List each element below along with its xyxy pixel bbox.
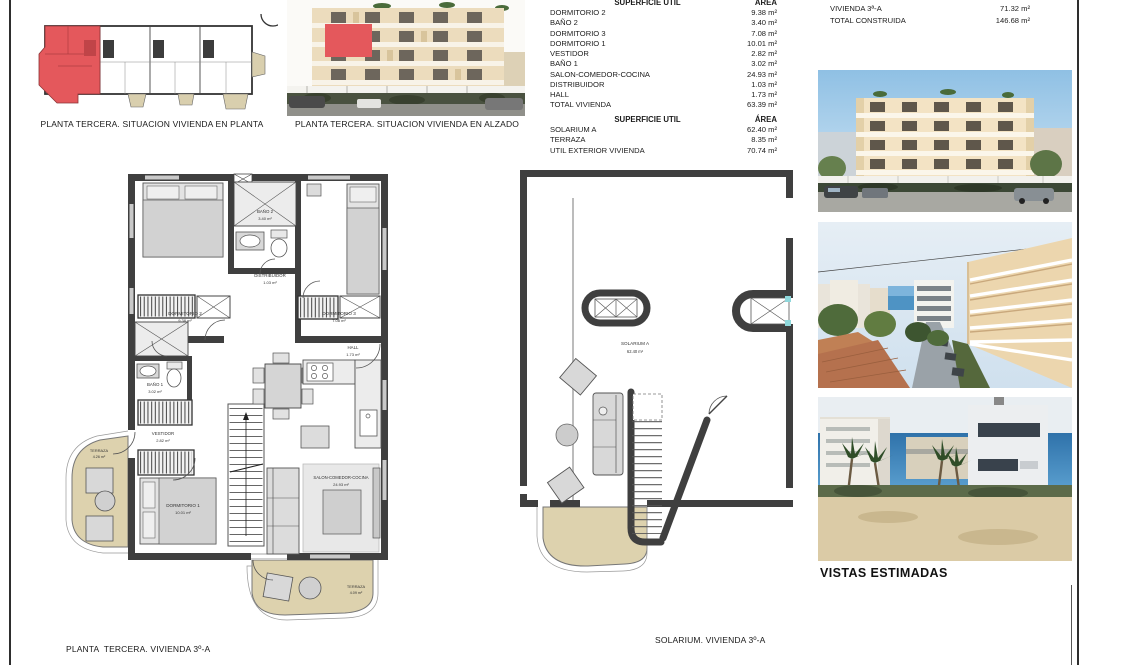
area-value: 8.35 m² xyxy=(751,135,777,144)
highlighted-unit-elevation xyxy=(325,24,372,57)
table-row: DORMITORIO 37.08 m² xyxy=(550,28,777,38)
bathroom1-fixtures xyxy=(135,322,188,387)
area-value: 7.08 m² xyxy=(751,29,777,38)
room-area: 62.40 m² xyxy=(627,349,644,354)
sheet-border-right xyxy=(1077,0,1079,665)
area-value: 10.01 m² xyxy=(747,39,777,48)
room-area: 3.40 m² xyxy=(258,216,272,221)
table-row: VIVIENDA 3ª-A71.32 m² xyxy=(830,2,1030,14)
area-value: 146.68 m² xyxy=(996,16,1030,25)
room-label: HALL xyxy=(348,345,360,350)
room-label: BAÑO 1 xyxy=(147,382,164,387)
room-area: 2.82 m² xyxy=(156,438,170,443)
room-label: TOTAL VIVIENDA xyxy=(550,100,747,109)
caption-planta-vivienda: PLANTA TERCERA. VIVIENDA 3º-A xyxy=(66,644,210,654)
room-area: 1.73 m² xyxy=(346,352,360,357)
header-superficie: SUPERFICIE UTIL xyxy=(550,115,731,124)
room-area: 3.02 m² xyxy=(148,389,162,394)
area-value: 24.93 m² xyxy=(747,70,777,79)
room-label: DORMITORIO 1 xyxy=(550,39,747,48)
photo-sea-view xyxy=(818,397,1072,561)
area-value: 2.82 m² xyxy=(751,49,777,58)
vistas-estimadas-label: VISTAS ESTIMADAS xyxy=(820,566,948,580)
room-label: DORMITORIO 3 xyxy=(322,311,356,316)
room-label: CONSTRUIDA TERRAZA xyxy=(830,0,1004,1)
caption-situacion-alzado: PLANTA TERCERA. SITUACION VIVIENDA EN AL… xyxy=(285,119,529,129)
area-value: 70.74 m² xyxy=(747,146,777,155)
room-label: SOLARIUM A xyxy=(621,341,650,346)
room-label: VIVIENDA 3ª-A xyxy=(830,4,1000,13)
table-row: HALL1.73 m² xyxy=(550,89,777,99)
area-value: 63.39 m² xyxy=(747,100,777,109)
room-label: UTIL EXTERIOR VIVIENDA xyxy=(550,146,747,155)
room-label: TERRAZA xyxy=(347,584,366,589)
room-label: TERRAZA xyxy=(550,135,751,144)
street-level xyxy=(287,86,525,116)
room-label: DORMITORIO 2 xyxy=(550,8,751,17)
terrace-south xyxy=(247,560,378,620)
room-label: HALL xyxy=(550,90,751,99)
area-value: 62.40 m² xyxy=(747,125,777,134)
photo-street-view xyxy=(818,222,1072,388)
floor-plan-vivienda: DORMITORIO 2 9.38 m² BAÑO 2 3.40 m² DORM… xyxy=(55,168,405,628)
table-superficie-util-exterior: SUPERFICIE UTIL ÁREA SOLARIUM A62.40 m² … xyxy=(550,115,777,155)
table-row: DORMITORIO 29.38 m² xyxy=(550,8,777,18)
solarium-stairs xyxy=(631,392,727,542)
table-superficie-construida: CONSTRUIDA TERRAZA8.32 m² VIVIENDA 3ª-A7… xyxy=(830,0,1030,26)
table-row: SALON-COMEDOR-COCINA24.93 m² xyxy=(550,69,777,79)
table-row-total: TOTAL VIVIENDA63.39 m² xyxy=(550,100,777,110)
sheet-border-left xyxy=(9,0,11,665)
area-value: 8.32 m² xyxy=(1004,0,1030,1)
room-label: VESTIDOR xyxy=(550,49,751,58)
area-value: 9.38 m² xyxy=(751,8,777,17)
table-row: TERRAZA8.35 m² xyxy=(550,135,777,145)
header-area: ÁREA xyxy=(731,115,777,124)
room-label: DISTRIBUIDOR xyxy=(550,80,751,89)
caption-solarium: SOLARIUM. VIVIENDA 3º-A xyxy=(655,635,765,645)
room-area: 10.01 m² xyxy=(175,510,191,515)
room-label: BAÑO 2 xyxy=(550,18,751,27)
plan-sheet: PLANTA TERCERA. SITUACION VIVIENDA EN PL… xyxy=(0,0,1130,665)
room-label: DORMITORIO 1 xyxy=(166,503,200,508)
caption-situacion-planta: PLANTA TERCERA. SITUACION VIVIENDA EN PL… xyxy=(30,119,274,129)
table-row: BAÑO 13.02 m² xyxy=(550,59,777,69)
table-superficie-util-vivienda: SUPERFICIE UTIL ÁREA DORMITORIO 29.38 m²… xyxy=(550,0,777,110)
area-value: 3.40 m² xyxy=(751,18,777,27)
room-label: SALON-COMEDOR-COCINA xyxy=(550,70,747,79)
highlighted-unit xyxy=(39,26,100,103)
room-label: BAÑO 2 xyxy=(257,209,274,214)
header-superficie: SUPERFICIE UTIL xyxy=(550,0,731,7)
planter-left xyxy=(585,293,647,323)
room-label: TOTAL CONSTRUIDA xyxy=(830,16,996,25)
room-label: TERRAZA xyxy=(90,448,109,453)
area-value: 1.03 m² xyxy=(751,80,777,89)
room-label: VESTIDOR xyxy=(152,431,174,436)
key-elevation-alzado xyxy=(287,0,525,116)
solarium-plan: SOLARIUM A 62.40 m² xyxy=(513,168,803,646)
room-label: DORMITORIO 3 xyxy=(550,29,751,38)
table-row: DORMITORIO 110.01 m² xyxy=(550,38,777,48)
room-area: 4.26 m² xyxy=(93,455,106,459)
key-plan-situacion xyxy=(28,14,278,116)
photo-render-building xyxy=(818,70,1072,212)
table-row: DISTRIBUIDOR1.03 m² xyxy=(550,79,777,89)
room-label: SALON-COMEDOR-COCINA xyxy=(313,475,368,480)
table-row-total: TOTAL CONSTRUIDA146.68 m² xyxy=(830,14,1030,26)
room-area: 24.93 m² xyxy=(333,482,349,487)
room-area: 9.38 m² xyxy=(178,318,192,323)
room-area: 1.03 m² xyxy=(263,280,277,285)
room-area: 7.08 m² xyxy=(332,318,346,323)
room-label: DISTRIBUIDOR xyxy=(254,273,285,278)
solarium-furniture xyxy=(547,358,623,503)
stairs xyxy=(228,404,264,546)
header-area: ÁREA xyxy=(731,0,777,7)
room-label: DORMITORIO 2 xyxy=(168,311,202,316)
bed-dormitorio3 xyxy=(307,184,379,294)
area-value: 3.02 m² xyxy=(751,59,777,68)
north-marker-icon xyxy=(261,14,278,26)
bed-dormitorio2 xyxy=(143,183,223,257)
table-header: SUPERFICIE UTIL ÁREA xyxy=(550,115,777,125)
table-row: SOLARIUM A62.40 m² xyxy=(550,125,777,135)
solarium-labels: SOLARIUM A 62.40 m² xyxy=(621,341,650,354)
table-row: VESTIDOR2.82 m² xyxy=(550,48,777,58)
room-area: 4.09 m² xyxy=(350,591,363,595)
table-header: SUPERFICIE UTIL ÁREA xyxy=(550,0,777,8)
area-value: 71.32 m² xyxy=(1000,4,1030,13)
planter-right xyxy=(736,294,793,328)
table-row: BAÑO 23.40 m² xyxy=(550,18,777,28)
table-row-total: UTIL EXTERIOR VIVIENDA70.74 m² xyxy=(550,145,777,155)
room-label: SOLARIUM A xyxy=(550,125,747,134)
area-value: 1.73 m² xyxy=(751,90,777,99)
titleblock-border xyxy=(1071,585,1072,665)
room-label: BAÑO 1 xyxy=(550,59,751,68)
